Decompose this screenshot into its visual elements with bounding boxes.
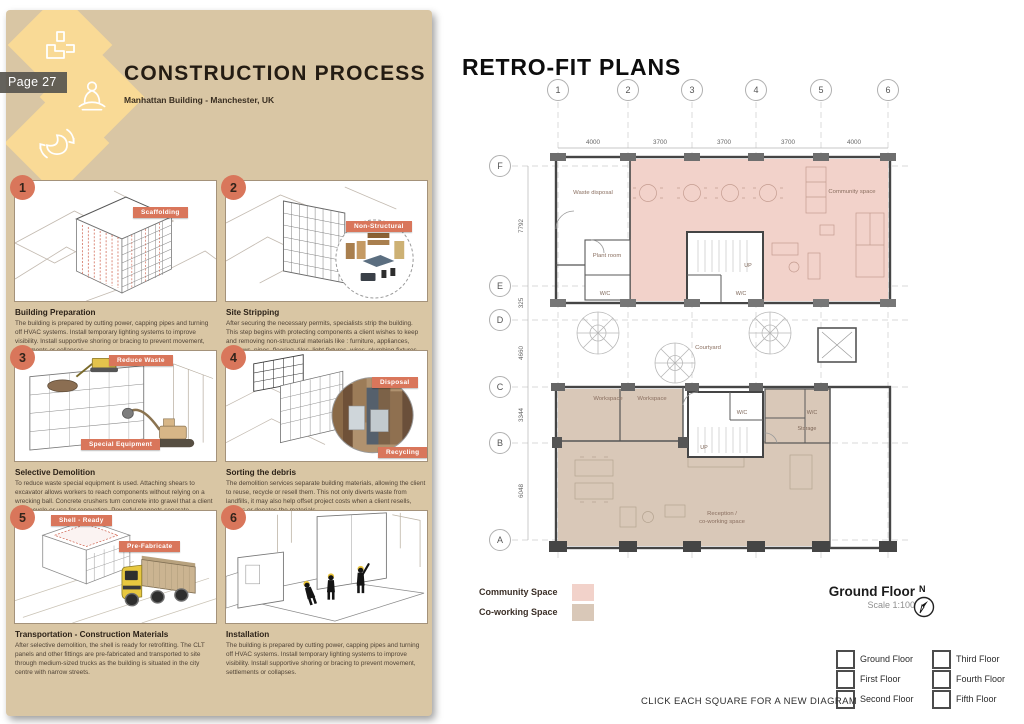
page-number-badge: Page 27 [0,72,67,93]
fourth-floor-checkbox[interactable] [932,670,951,689]
label-up: UP [744,263,752,269]
grid-bubble-6: 6 [885,85,890,95]
step-number-badge: 4 [221,345,246,370]
dim-4000: 4000 [586,139,601,146]
grid-bubble-F: F [497,161,503,171]
legend-label: Community Space [479,587,569,597]
step-body: After selective demolition, the shell is… [15,642,215,678]
dim-4000: 4000 [847,139,862,146]
floor-selector: Ground Floor First Floor Second Floor Th… [836,649,1024,709]
third-floor-checkbox[interactable] [932,650,951,669]
step-heading: Transportation - Construction Materials [15,630,217,639]
floor-title: Ground Floor [775,584,915,599]
sorting-debris-drawing [226,351,427,461]
label-wc: W/C [600,291,611,297]
scale-note: Scale 1:100 [775,600,915,610]
site-stripping-drawing [226,181,427,301]
page-subtitle: Manhattan Building - Manchester, UK [124,95,274,105]
top-dimensions: 4000 3700 3700 3700 4000 [586,139,862,146]
step6-illustration: 6 [225,510,428,624]
page-root: CONSTRUCTION PROCESS Manhattan Building … [0,0,1024,724]
floor-item-third[interactable]: Third Floor [932,649,1024,669]
dim-6048: 6048 [518,484,525,499]
north-arrow-icon [913,596,935,618]
grid-row-bubbles: F E D C B A [490,156,511,551]
plan-legend: Community Space Co-working Space [479,582,594,622]
grid-bubble-2: 2 [625,85,630,95]
step-number-badge: 2 [221,175,246,200]
step-heading: Site Stripping [226,308,428,317]
tag-scaffolding: Scaffolding [133,207,188,218]
floor-label: Fifth Floor [956,694,997,704]
installation-drawing [226,511,427,623]
tag-special-equipment: Special Equipment [81,439,160,450]
tag-shell-ready: Shell - Ready [51,515,112,526]
label-up: UP [700,445,708,451]
floor-item-fifth[interactable]: Fifth Floor [932,689,1024,709]
elevator [818,328,856,362]
legend-item-community: Community Space [479,582,594,602]
step1-illustration: 1 Scaffolding [14,180,217,302]
label-wc: W/C [807,410,818,416]
floor-item-fourth[interactable]: Fourth Floor [932,669,1024,689]
grid-bubble-B: B [497,438,503,448]
legend-label: Co-working Space [479,607,569,617]
grid-bubble-4: 4 [753,85,758,95]
floor-label: Second Floor [860,694,914,704]
click-instruction-note: CLICK EACH SQUARE FOR A NEW DIAGRAM [641,696,857,707]
left-dimensions: 7792 325 4660 3344 6048 [518,219,525,499]
label-reception-line1: Reception / [707,511,737,517]
courtyard-trees [577,312,791,383]
label-workspace: Workspace [593,396,623,402]
step-heading: Installation [226,630,428,639]
floor-label: First Floor [860,674,901,684]
first-floor-checkbox[interactable] [836,670,855,689]
grid-bubble-3: 3 [689,85,694,95]
step-number-badge: 6 [221,505,246,530]
dim-3700: 3700 [717,139,732,146]
step-number-badge: 3 [10,345,35,370]
grid-bubble-1: 1 [555,85,560,95]
construction-process-sheet: CONSTRUCTION PROCESS Manhattan Building … [6,10,432,716]
step-panel-5: 5 Shell - Ready Pre-Fabricate [14,510,217,678]
floor-label: Ground Floor [860,654,913,664]
grid-bubble-D: D [497,315,504,325]
step2-illustration: 2 Non-Structural [225,180,428,302]
tag-reduce-waste: Reduce Waste [109,355,173,366]
label-courtyard: Courtyard [695,345,721,351]
dim-325: 325 [518,297,525,308]
floor-item-ground[interactable]: Ground Floor [836,649,932,669]
floor-plan: 4000 3700 3700 3700 4000 7792 325 4660 3… [460,75,1020,577]
step-panel-2: 2 Non-Structural [225,180,428,356]
floor-label: Fourth Floor [956,674,1005,684]
north-letter: N [919,584,926,594]
step4-illustration: 4 Disposal Recycling [225,350,428,462]
step-panel-1: 1 Scaffolding Building Preparation [14,180,217,356]
leaf-recycle-icon [37,123,77,163]
grid-bubble-A: A [497,535,503,545]
dim-3700: 3700 [653,139,668,146]
grid-bubble-5: 5 [818,85,823,95]
step-panel-3: 3 Reduce Waste Special Equipment [14,350,217,516]
grid-bubble-C: C [497,382,504,392]
ground-floor-plan-svg: 4000 3700 3700 3700 4000 7792 325 4660 3… [460,75,1020,577]
legend-swatch-coworking [572,604,594,621]
floor-title-block: Ground Floor Scale 1:100 [775,584,915,610]
isometric-building-drawing [15,181,216,301]
step-body: The building is prepared by cutting powe… [226,642,426,678]
label-wc: W/C [737,410,748,416]
step-heading: Sorting the debris [226,468,428,477]
dim-4660: 4660 [518,346,525,361]
label-waste-disposal: Waste disposal [573,190,613,196]
dim-3700: 3700 [781,139,796,146]
step-panel-4: 4 Disposal Recycling [225,350,428,516]
grid-bubble-E: E [497,281,503,291]
label-reception-line2: co-working space [699,519,746,525]
floor-label: Third Floor [956,654,1000,664]
tag-non-structural: Non-Structural [346,221,412,232]
page-title: CONSTRUCTION PROCESS [124,62,426,86]
fifth-floor-checkbox[interactable] [932,690,951,709]
step-heading: Selective Demolition [15,468,217,477]
legend-swatch-community [572,584,594,601]
step-number-badge: 1 [10,175,35,200]
floor-item-first[interactable]: First Floor [836,669,932,689]
dim-7792: 7792 [518,219,525,234]
storage-wc-zone [765,389,830,443]
step3-illustration: 3 Reduce Waste Special Equipment [14,350,217,462]
tag-disposal: Disposal [372,377,418,388]
meditation-icon [73,78,111,116]
step-panel-6: 6 [225,510,428,678]
grid-column-bubbles: 1 2 3 4 5 6 [548,80,899,101]
step-heading: Building Preparation [15,308,217,317]
label-plant-room: Plant room [593,253,622,259]
label-community-space: Community space [828,189,876,195]
tag-pre-fabricate: Pre-Fabricate [119,541,180,552]
dim-3344: 3344 [518,408,525,423]
label-wc: W/C [736,291,747,297]
label-storage: Storage [798,426,817,432]
label-workspace: Workspace [637,396,667,402]
step5-illustration: 5 Shell - Ready Pre-Fabricate [14,510,217,624]
step-number-badge: 5 [10,505,35,530]
transportation-drawing [15,511,216,623]
legend-item-coworking: Co-working Space [479,602,594,622]
blocks-icon [42,27,78,63]
ground-floor-checkbox[interactable] [836,650,855,669]
tag-recycling: Recycling [378,447,427,458]
